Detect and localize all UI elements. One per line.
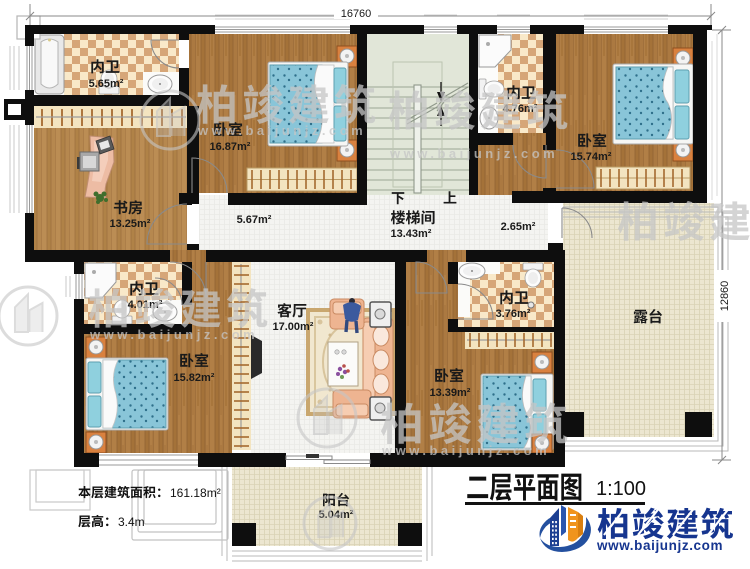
svg-text:12860: 12860 — [719, 281, 731, 312]
svg-text:17.00m²: 17.00m² — [273, 321, 314, 333]
svg-text:13.39m²: 13.39m² — [430, 387, 471, 399]
svg-text:13.25m²: 13.25m² — [110, 218, 151, 230]
svg-text:15.82m²: 15.82m² — [174, 372, 215, 384]
svg-text:16.87m²: 16.87m² — [210, 141, 251, 153]
svg-text:www.baijunjz.com: www.baijunjz.com — [596, 538, 723, 553]
svg-text:3.4m: 3.4m — [118, 515, 145, 529]
svg-text:15.74m²: 15.74m² — [571, 151, 612, 163]
svg-text:2.65m²: 2.65m² — [501, 221, 536, 233]
svg-text:161.18m²: 161.18m² — [170, 486, 221, 500]
svg-text:www.baijunjz.com: www.baijunjz.com — [389, 146, 558, 161]
svg-text:3.76m²: 3.76m² — [496, 308, 531, 320]
svg-text:5.67m²: 5.67m² — [237, 214, 272, 226]
svg-text:16760: 16760 — [341, 8, 372, 20]
svg-text:www.baijunjz.com: www.baijunjz.com — [89, 327, 258, 342]
svg-text:13.43m²: 13.43m² — [391, 228, 432, 240]
svg-text:5.65m²: 5.65m² — [89, 78, 124, 90]
svg-text:1:100: 1:100 — [596, 478, 646, 500]
svg-text:www.baijunjz.com: www.baijunjz.com — [197, 123, 366, 138]
svg-text:www.baijunjz.com: www.baijunjz.com — [381, 443, 550, 458]
